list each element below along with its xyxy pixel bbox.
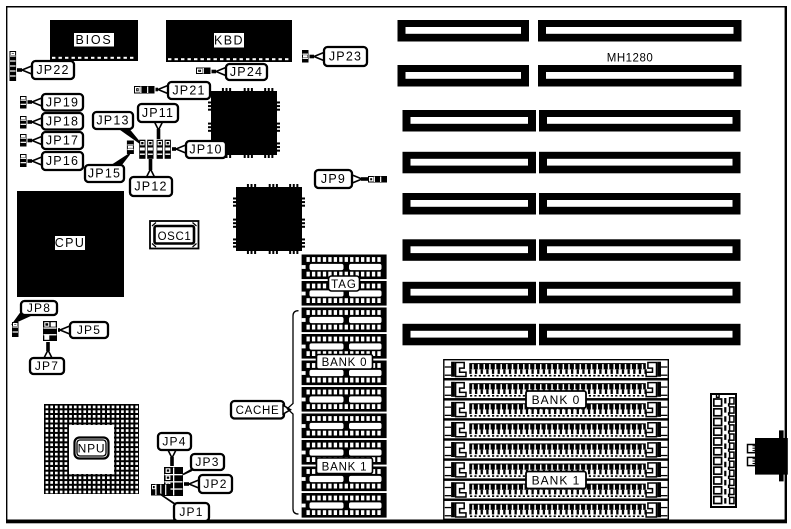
svg-text:BANK 1: BANK 1 [322,461,368,473]
svg-text:JP3: JP3 [195,455,219,469]
svg-text:BANK 0: BANK 0 [532,393,581,407]
svg-text:CPU: CPU [55,236,86,250]
svg-text:JP23: JP23 [329,50,362,64]
svg-text:KBD: KBD [214,34,244,48]
svg-text:BIOS: BIOS [75,33,112,47]
svg-text:JP13: JP13 [96,114,129,128]
svg-text:OSC1: OSC1 [158,231,192,243]
svg-text:BANK 1: BANK 1 [532,474,581,488]
svg-text:JP22: JP22 [36,63,69,77]
svg-text:TAG: TAG [331,279,357,291]
svg-text:JP10: JP10 [189,143,222,157]
svg-text:JP8: JP8 [27,301,51,315]
svg-text:JP19: JP19 [46,95,79,109]
svg-text:JP9: JP9 [321,172,346,186]
svg-text:JP5: JP5 [77,323,101,337]
svg-text:JP18: JP18 [46,114,79,128]
svg-text:JP12: JP12 [134,180,167,194]
svg-text:CACHE: CACHE [236,405,280,417]
svg-text:JP21: JP21 [172,84,205,98]
svg-text:JP4: JP4 [162,435,186,449]
svg-text:JP11: JP11 [142,106,174,120]
svg-text:JP2: JP2 [203,477,227,491]
svg-text:JP7: JP7 [35,359,59,373]
svg-text:JP24: JP24 [230,65,263,79]
svg-text:JP16: JP16 [46,154,79,168]
svg-text:NPU: NPU [78,442,106,456]
svg-text:JP17: JP17 [46,134,79,148]
svg-text:BANK 0: BANK 0 [322,357,368,369]
svg-text:JP1: JP1 [179,505,203,519]
svg-text:JP15: JP15 [88,167,121,181]
svg-text:MH1280: MH1280 [607,53,653,65]
